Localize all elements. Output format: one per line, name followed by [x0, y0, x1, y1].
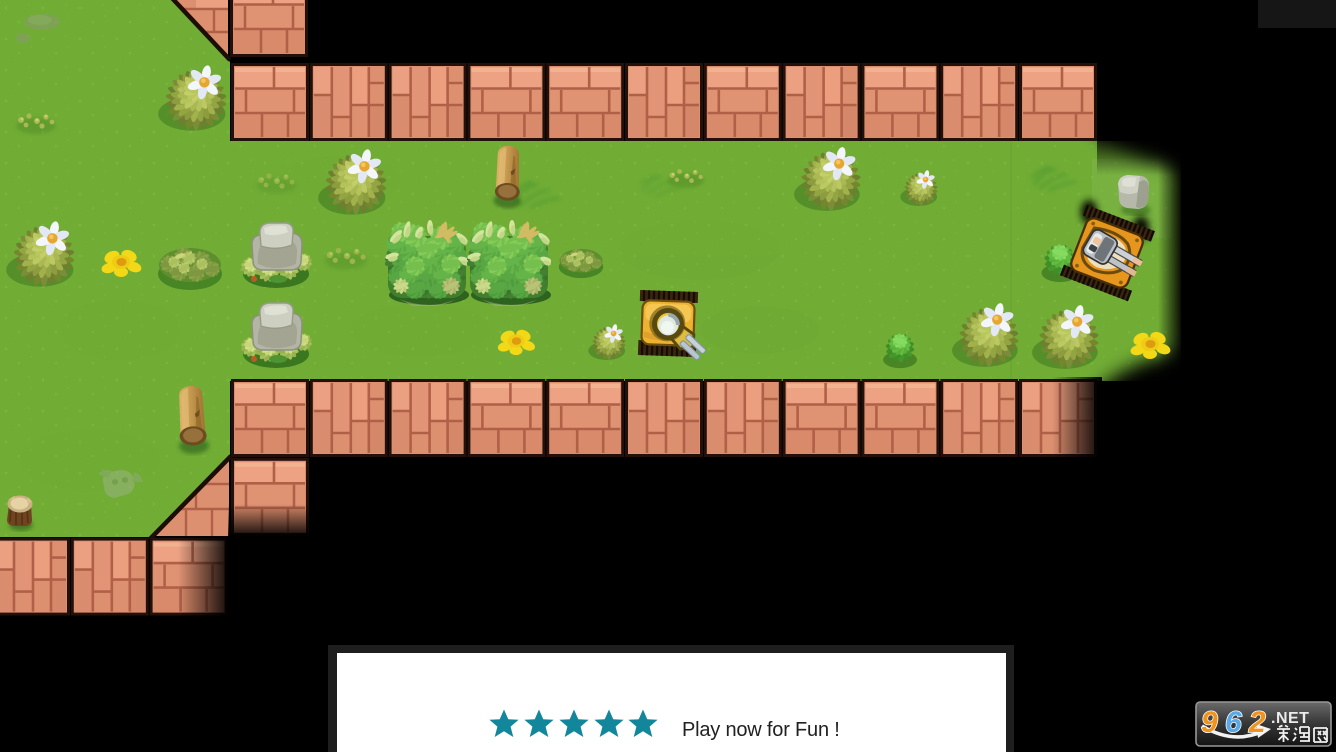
svg-text:.NET: .NET — [1271, 710, 1309, 727]
svg-text:Play now for Fun !: Play now for Fun ! — [682, 719, 840, 741]
svg-text:2: 2 — [1248, 706, 1266, 739]
svg-text:6: 6 — [1225, 706, 1242, 739]
svg-text:9: 9 — [1201, 706, 1218, 739]
